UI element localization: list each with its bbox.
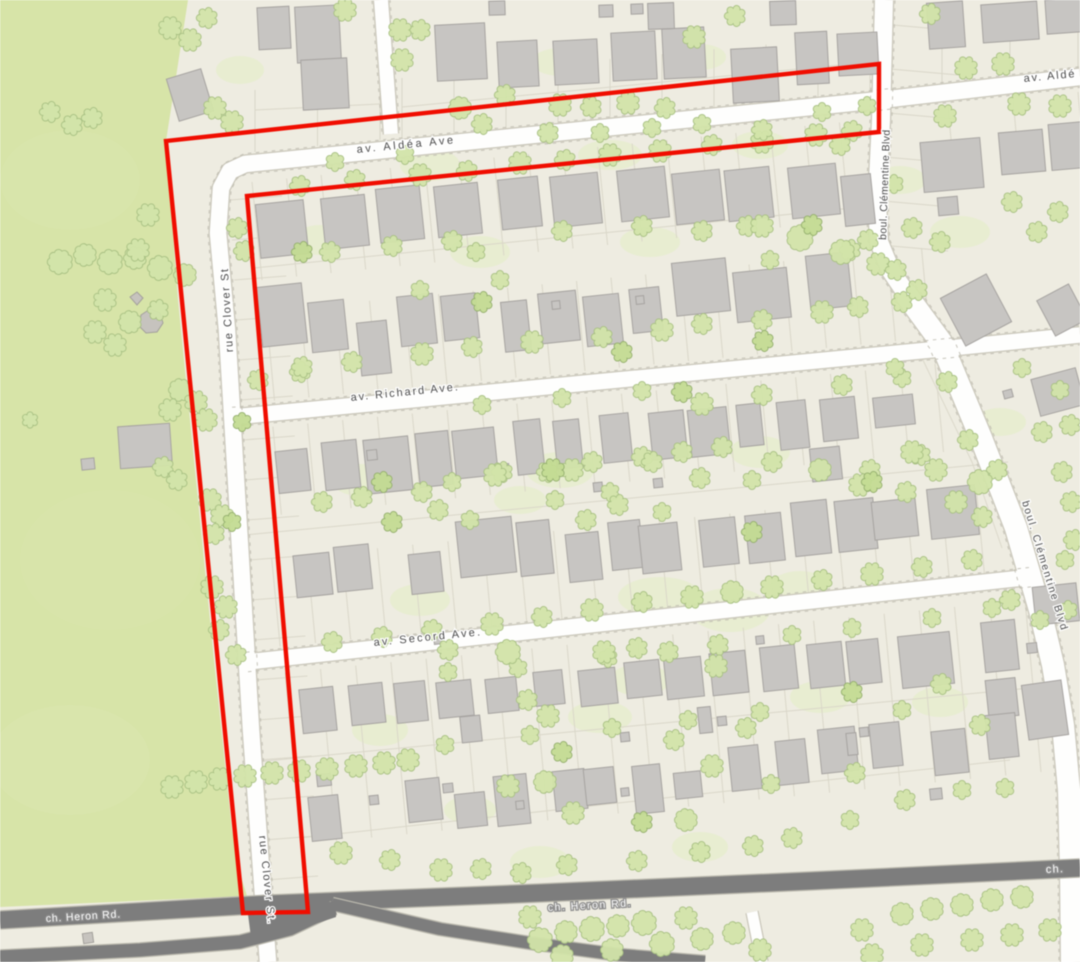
svg-text:ch.: ch.	[1045, 863, 1064, 876]
